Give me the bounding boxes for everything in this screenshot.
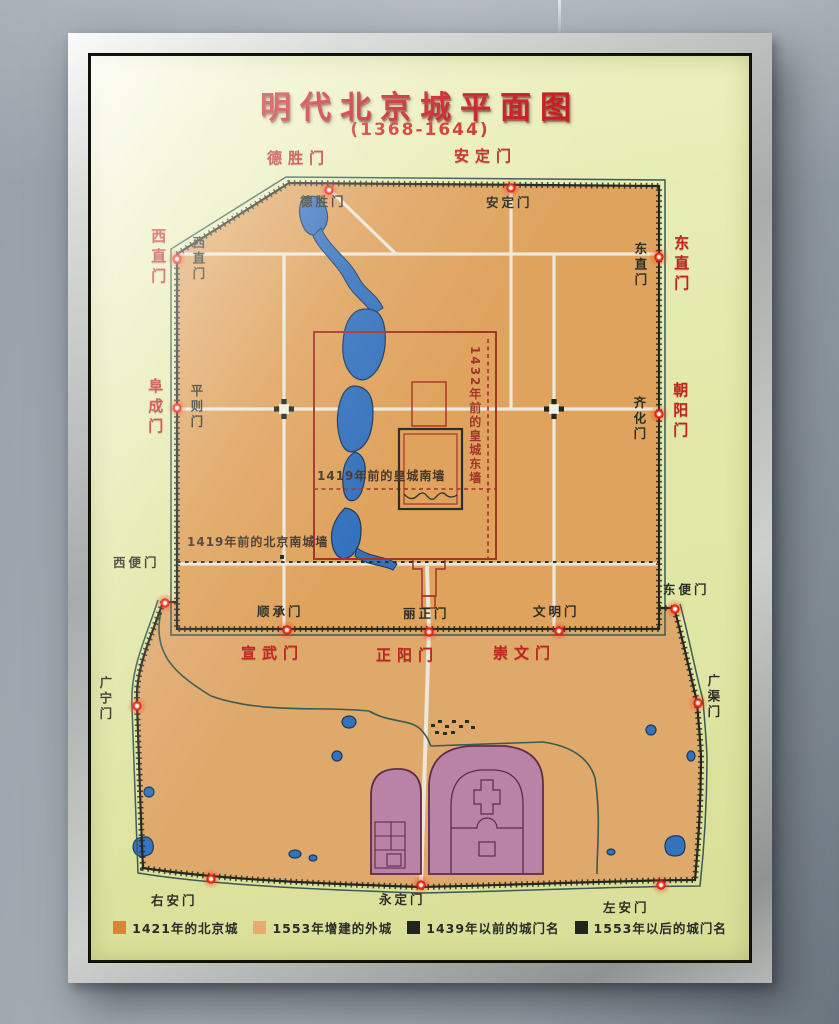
gate-label-xuanwu-red: 宣武门 [241,645,304,662]
gate-label-shuncheng-old: 顺承门 [257,605,304,619]
gate-label-lizheng-old: 丽正门 [403,607,450,621]
map-subtitle: (1368-1644) [91,120,749,140]
annotation-imperial-east-wall: 1432年前的皇城东墙 [467,346,481,476]
gate-label-dongzhi-red: 东直门 [672,235,689,295]
gate-label-youan: 右安门 [151,894,198,908]
gate-label-qihua-old: 齐化门 [631,396,645,443]
legend-swatch-old-names [407,921,420,934]
gate-label-guangqu: 广渠门 [705,674,719,721]
gate-label-chaoyang-red: 朝阳门 [671,382,688,442]
gate-label-pingze-old: 平则门 [188,384,202,431]
tiantan-altar [429,746,543,874]
gate-label-yongding: 永定门 [379,893,426,907]
map-panel: 明代北京城平面图 (1368-1644) [91,56,749,960]
gate-label-wenming-old: 文明门 [533,605,580,619]
gate-label-chongwen-red: 崇文门 [493,645,556,662]
legend-swatch-inner-city [113,921,126,934]
gate-label-fucheng-red: 阜成门 [146,378,163,438]
gate-label-dongzhi-old: 东直门 [632,242,646,289]
legend-swatch-outer-city [253,921,266,934]
gate-label-guangning: 广宁门 [97,676,111,723]
gate-label-xizhi-old: 西直门 [190,236,204,283]
old-gate-dot [280,555,284,559]
gate-label-anding-red: 安定门 [454,148,517,165]
gate-label-desheng-old: 德胜门 [300,195,347,209]
gate-label-zhengyang-red: 正阳门 [376,647,439,664]
picture-frame: 明代北京城平面图 (1368-1644) [68,33,772,983]
annotation-beijing-south-wall: 1419年前的北京南城墙 [187,536,328,550]
gate-label-xizhi-red: 西直门 [149,228,166,288]
museum-wall-photo: 明代北京城平面图 (1368-1644) [0,0,839,1024]
gate-label-zuoan: 左安门 [603,901,650,915]
gate-label-xibian: 西便门 [113,556,160,570]
gate-label-dongbian: 东便门 [663,583,710,597]
legend-swatch-new-names [575,921,588,934]
annotation-imperial-south-wall: 1419年前的皇城南墙 [317,470,445,484]
beijing-map-drawing [91,56,749,960]
legend-item-1421: 1421年的北京城 [113,918,238,937]
gate-label-desheng-red: 德胜门 [267,150,330,167]
gate-label-anding-old: 安定门 [486,196,533,210]
legend-item-pre1439-names: 1439年以前的城门名 [407,918,559,937]
map-legend: 1421年的北京城 1553年增建的外城 1439年以前的城门名 1553年以后… [91,918,749,937]
legend-item-post1553-names: 1553年以后的城门名 [575,918,727,937]
frame-bevel: 明代北京城平面图 (1368-1644) [88,53,752,963]
legend-item-1553-outer: 1553年增建的外城 [253,918,392,937]
